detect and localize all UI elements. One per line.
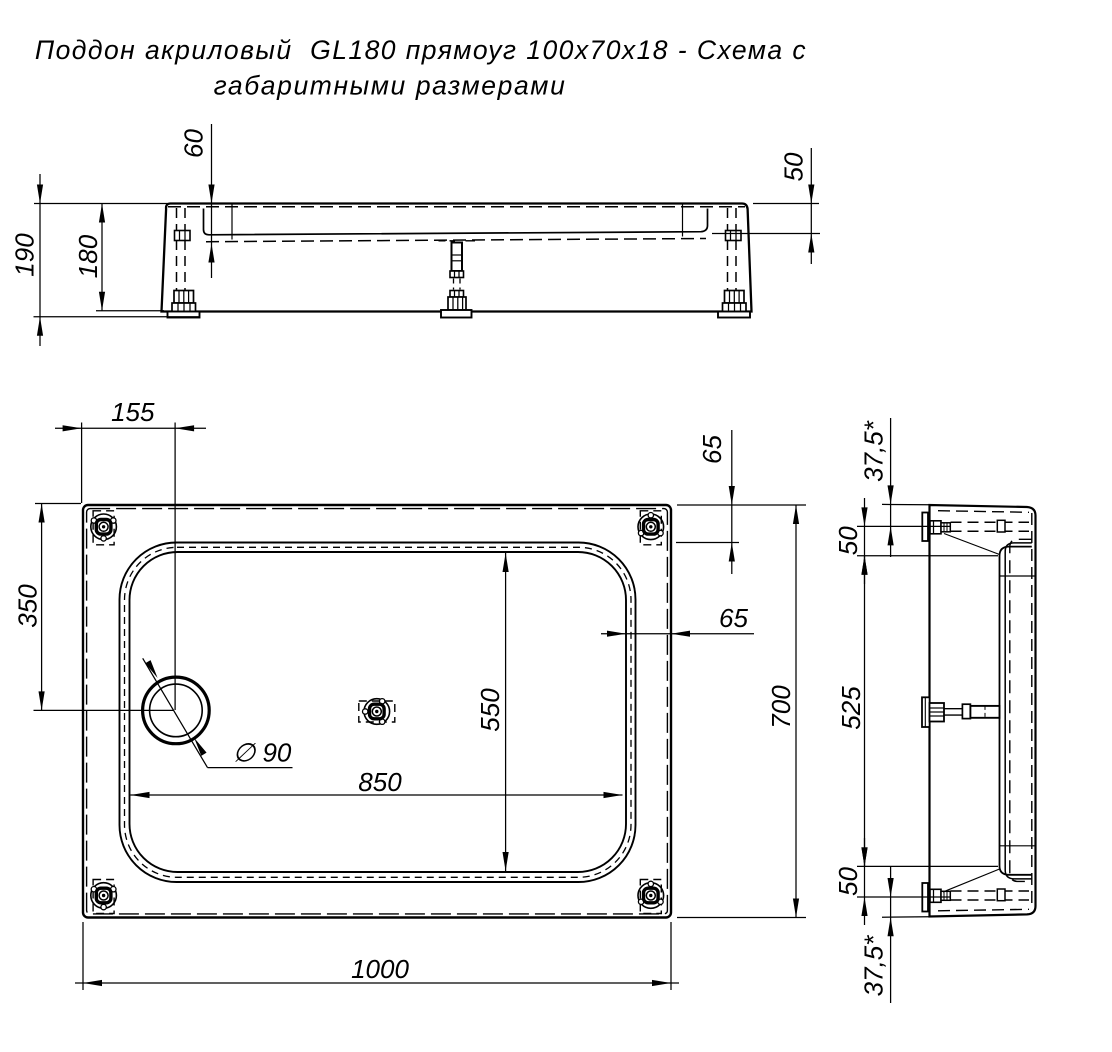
svg-text:60: 60 xyxy=(178,129,208,158)
svg-text:1000: 1000 xyxy=(351,954,409,984)
svg-text:190: 190 xyxy=(9,233,39,277)
svg-text:50: 50 xyxy=(833,867,863,896)
svg-text:65: 65 xyxy=(697,435,727,464)
svg-text:180: 180 xyxy=(73,234,103,278)
svg-text:525: 525 xyxy=(836,686,866,730)
svg-text:50: 50 xyxy=(833,526,863,555)
svg-text:∅ 90: ∅ 90 xyxy=(233,738,292,768)
svg-text:габаритными размерами: габаритными размерами xyxy=(214,71,567,101)
svg-text:350: 350 xyxy=(12,584,42,628)
svg-text:65: 65 xyxy=(719,603,748,633)
svg-text:37,5*: 37,5* xyxy=(858,935,888,997)
svg-text:155: 155 xyxy=(111,397,155,427)
svg-text:700: 700 xyxy=(766,685,796,729)
svg-text:37,5*: 37,5* xyxy=(858,420,888,482)
svg-text:Поддон акриловый GL180 прямоу: Поддон акриловый GL180 прямоуг 100х70х18… xyxy=(35,35,807,65)
svg-text:50: 50 xyxy=(778,152,808,181)
svg-text:550: 550 xyxy=(475,688,505,732)
svg-text:850: 850 xyxy=(358,767,402,797)
